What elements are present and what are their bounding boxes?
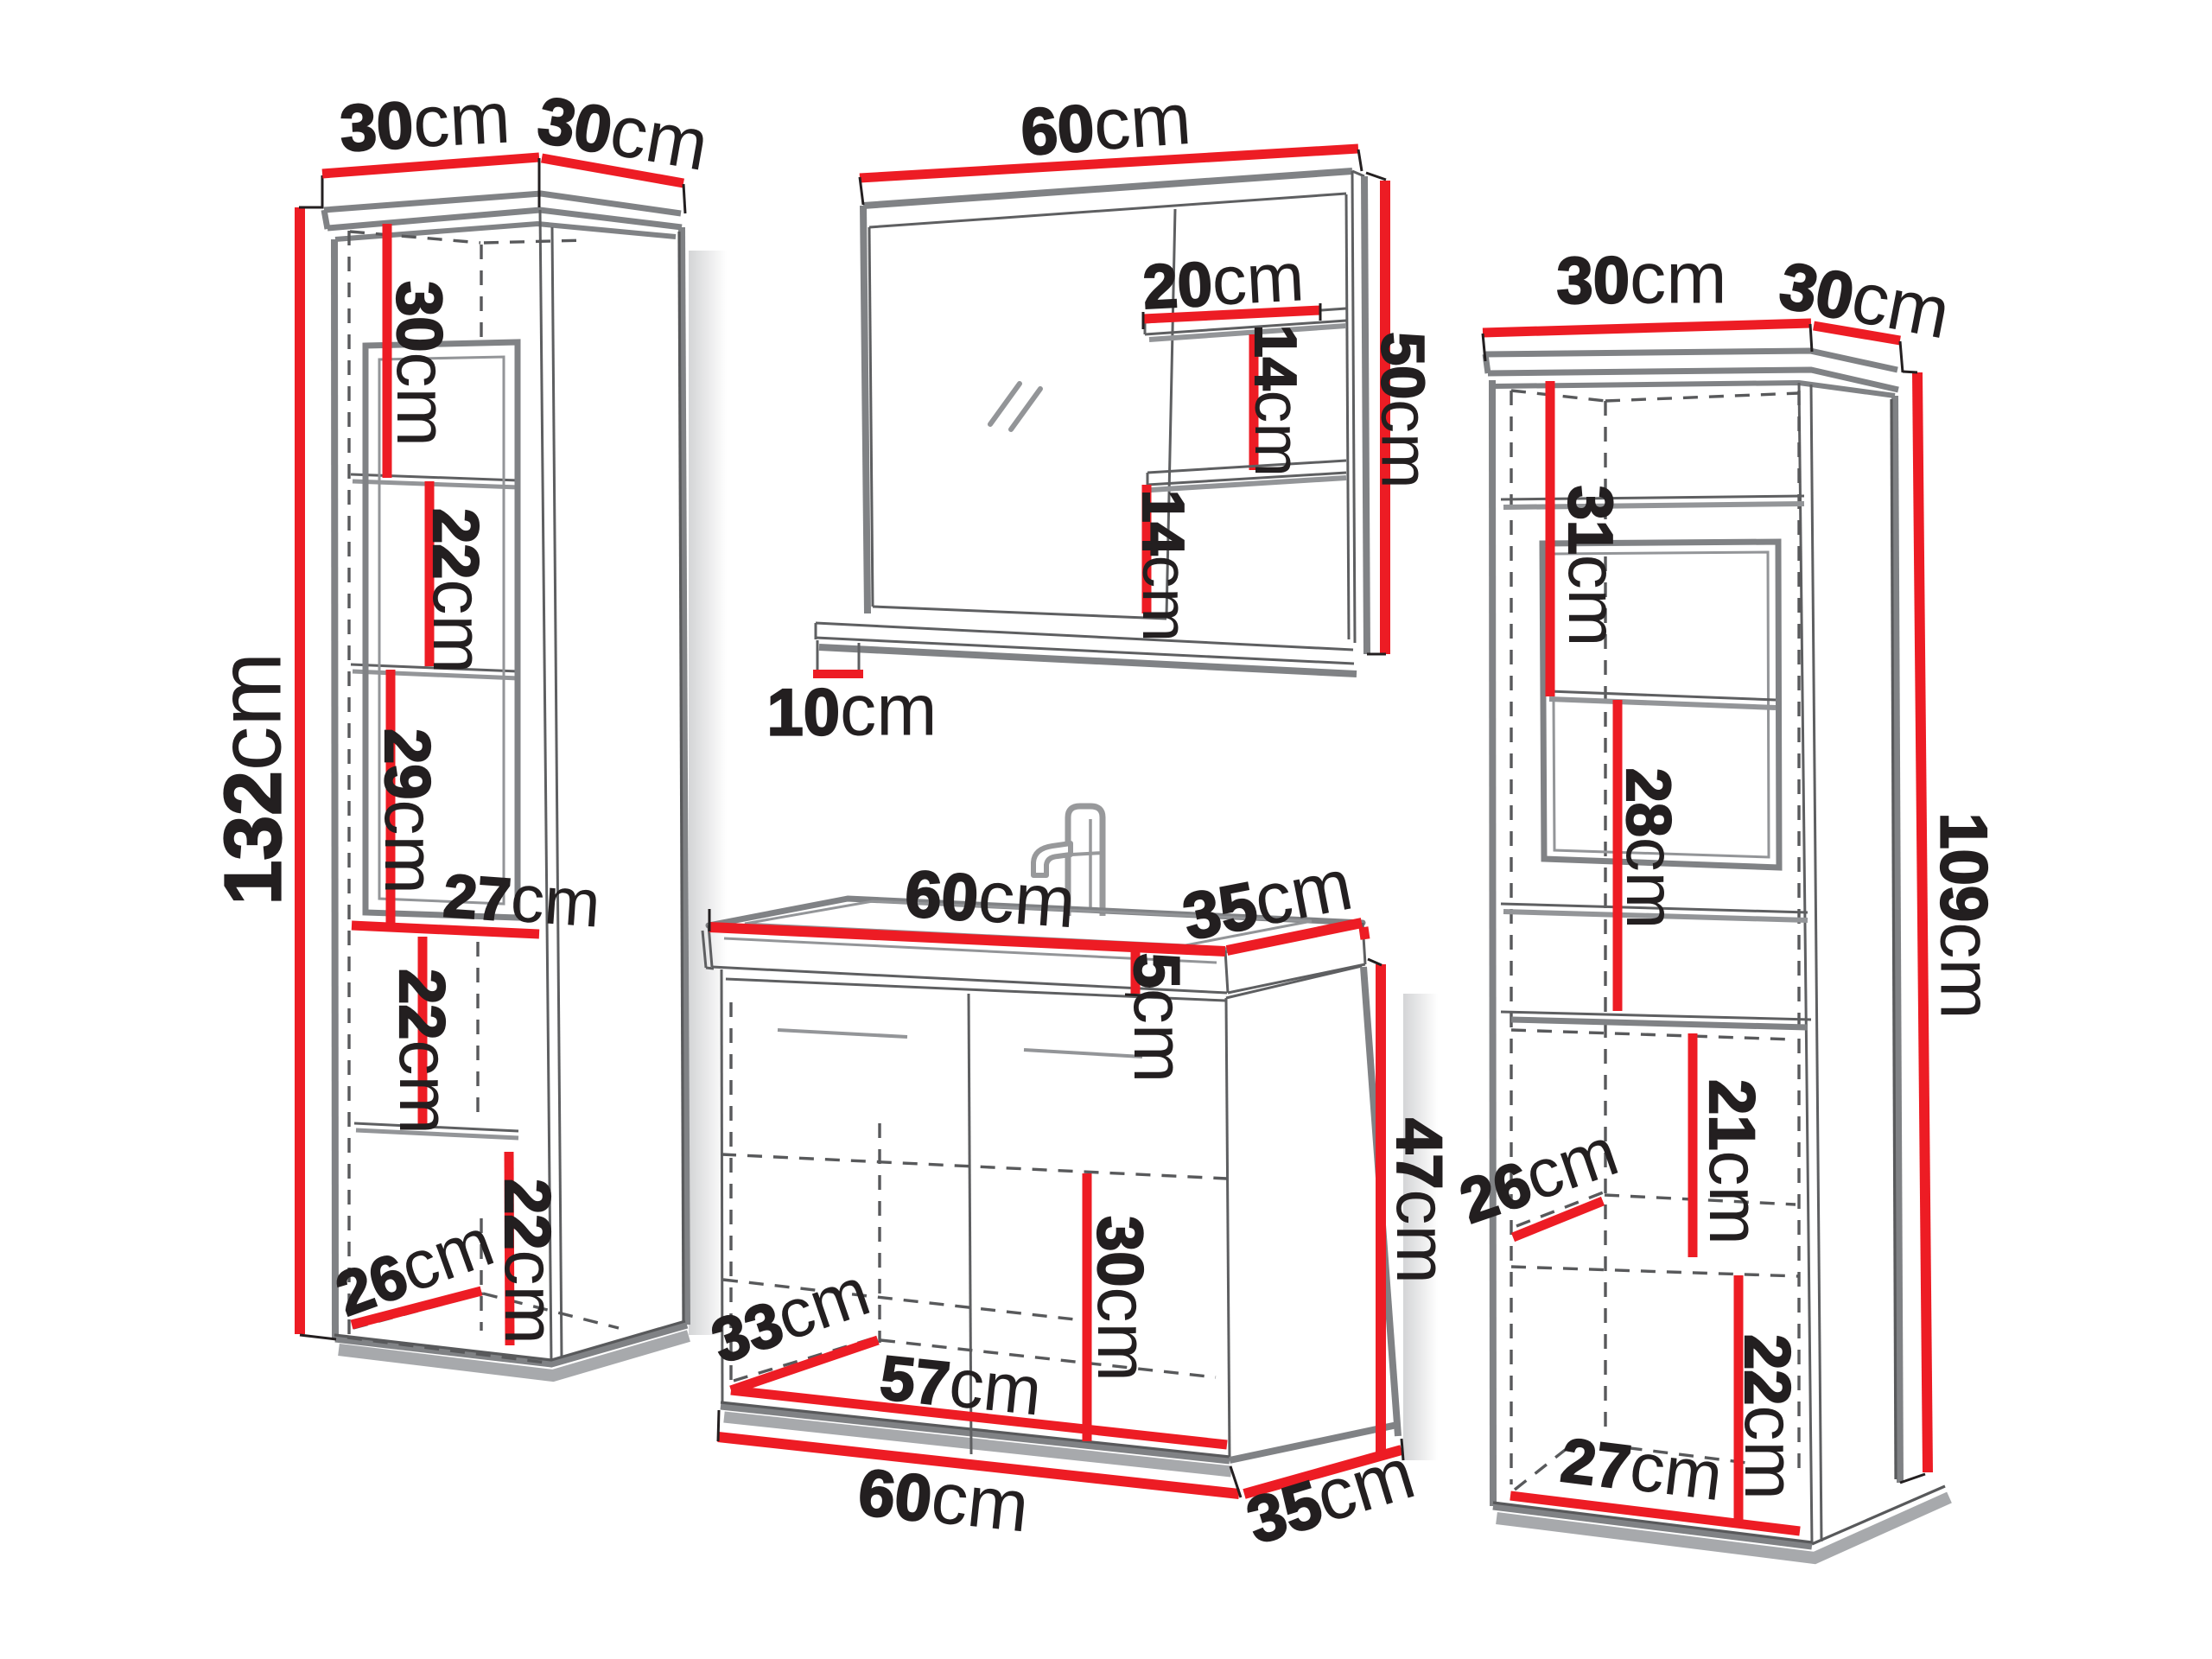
svg-text:47cm: 47cm [1382, 1118, 1460, 1284]
svg-text:30cm: 30cm [382, 281, 461, 447]
svg-text:22cm: 22cm [418, 508, 497, 674]
svg-text:109cm: 109cm [1925, 812, 2006, 1019]
svg-text:60cm: 60cm [903, 850, 1078, 944]
svg-text:22cm: 22cm [1730, 1334, 1808, 1500]
svg-text:14cm: 14cm [1129, 490, 1202, 642]
svg-text:5cm: 5cm [1119, 953, 1198, 1084]
svg-text:30cm: 30cm [1557, 238, 1727, 319]
svg-text:22cm: 22cm [490, 1179, 569, 1344]
svg-text:29cm: 29cm [370, 728, 448, 894]
svg-text:27cm: 27cm [442, 856, 603, 941]
svg-text:21cm: 21cm [1694, 1079, 1773, 1245]
svg-text:10cm: 10cm [767, 670, 938, 751]
svg-text:28cm: 28cm [1612, 768, 1689, 930]
svg-text:31cm: 31cm [1554, 486, 1631, 647]
svg-text:50cm: 50cm [1368, 332, 1442, 488]
svg-text:14cm: 14cm [1242, 325, 1314, 477]
svg-text:132cm: 132cm [200, 652, 300, 906]
svg-text:22cm: 22cm [385, 969, 463, 1135]
svg-text:30cm: 30cm [1083, 1216, 1161, 1382]
